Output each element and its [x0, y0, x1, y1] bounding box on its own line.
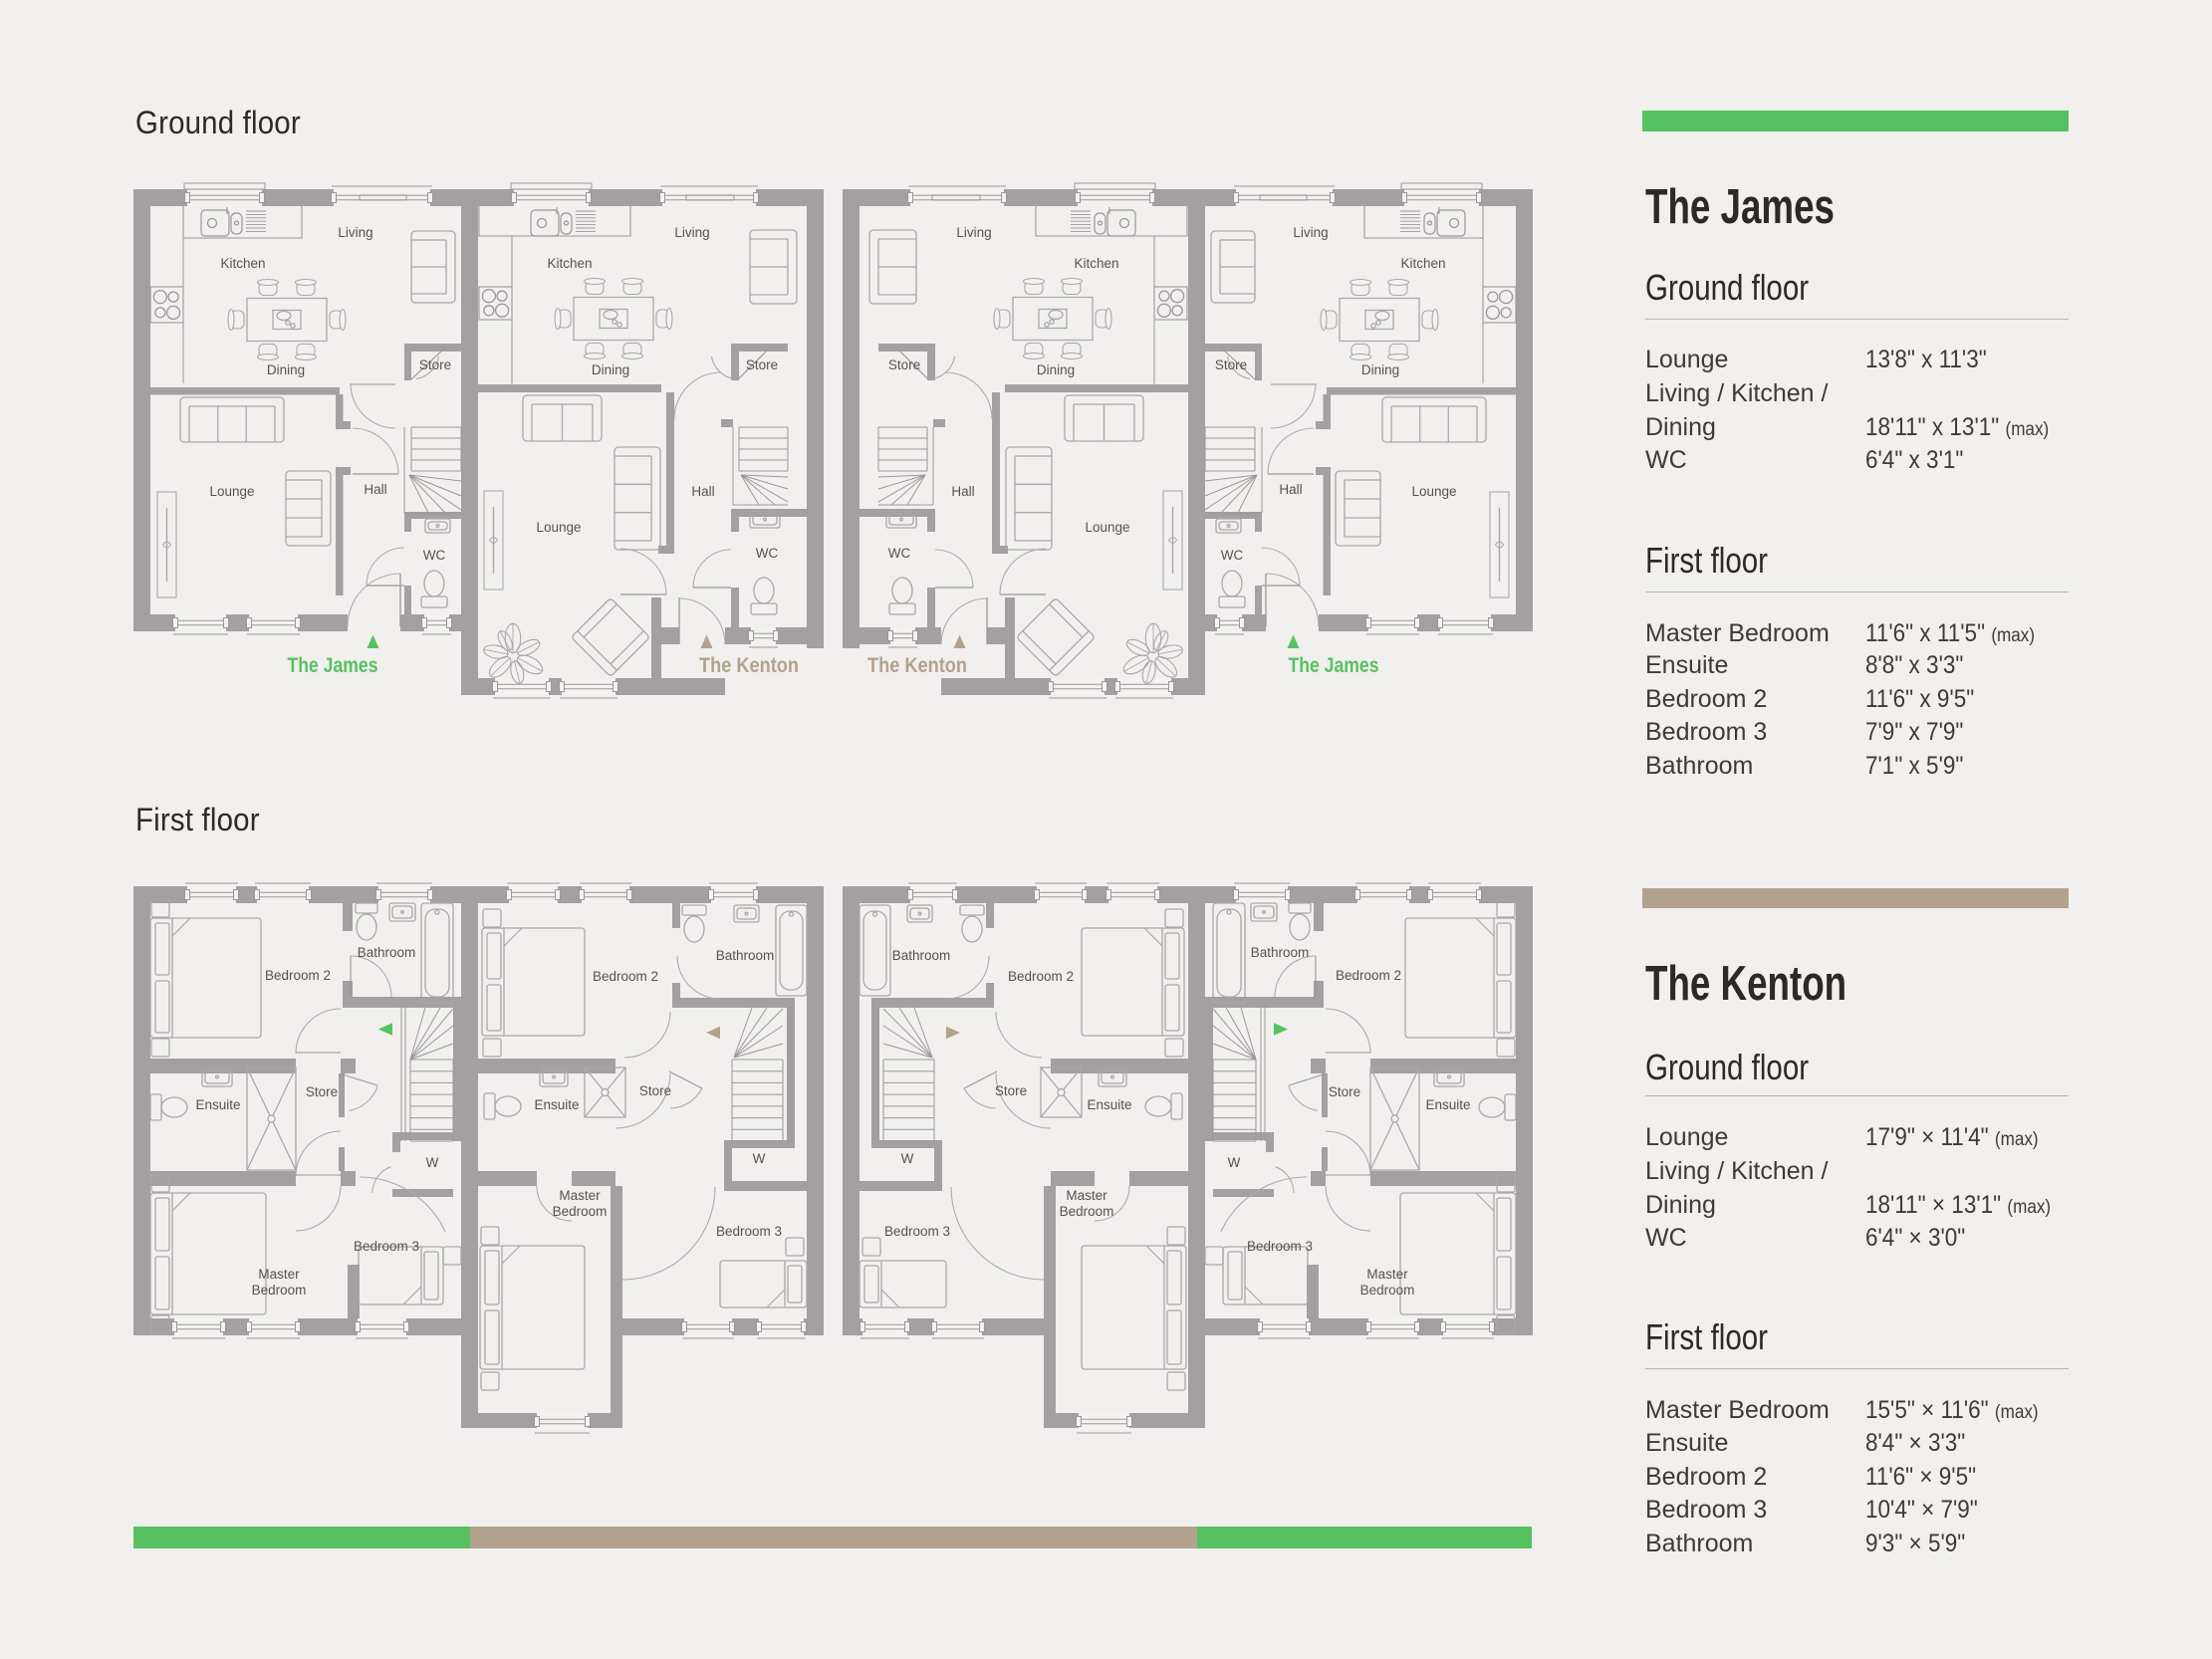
svg-text:Kitchen: Kitchen	[1400, 256, 1445, 271]
svg-text:Store: Store	[888, 357, 920, 372]
svg-text:WC: WC	[423, 548, 446, 563]
svg-text:Living: Living	[956, 225, 991, 240]
svg-text:Bedroom 3: Bedroom 3	[354, 1239, 419, 1254]
svg-text:Store: Store	[995, 1083, 1027, 1098]
svg-text:The Kenton: The Kenton	[867, 654, 967, 677]
svg-text:Bedroom 2: Bedroom 2	[593, 969, 658, 984]
svg-text:Kitchen: Kitchen	[547, 256, 592, 271]
svg-text:Living: Living	[338, 225, 372, 240]
svg-text:W: W	[753, 1151, 766, 1166]
svg-text:Bathroom: Bathroom	[892, 948, 951, 963]
svg-text:Bathroom: Bathroom	[716, 948, 775, 963]
svg-text:Bathroom: Bathroom	[1251, 945, 1310, 960]
svg-text:Bedroom: Bedroom	[1060, 1204, 1114, 1219]
svg-text:The James: The James	[1289, 654, 1379, 677]
svg-text:Bedroom 3: Bedroom 3	[884, 1224, 950, 1239]
svg-text:Bedroom: Bedroom	[553, 1204, 608, 1219]
svg-text:Bathroom: Bathroom	[358, 945, 416, 960]
svg-text:Store: Store	[306, 1084, 338, 1099]
svg-text:Store: Store	[1215, 357, 1247, 372]
svg-text:Ensuite: Ensuite	[1087, 1097, 1131, 1112]
svg-text:Bedroom 3: Bedroom 3	[716, 1224, 782, 1239]
svg-text:Store: Store	[746, 357, 778, 372]
svg-text:Lounge: Lounge	[209, 484, 254, 499]
svg-text:Living: Living	[674, 225, 709, 240]
svg-text:Bedroom: Bedroom	[252, 1283, 307, 1298]
svg-text:Dining: Dining	[1361, 362, 1399, 377]
svg-text:Bedroom 2: Bedroom 2	[1336, 968, 1401, 983]
svg-text:W: W	[1228, 1155, 1241, 1170]
svg-text:Dining: Dining	[592, 362, 629, 377]
svg-text:Master: Master	[1366, 1267, 1408, 1282]
svg-text:Kitchen: Kitchen	[220, 256, 265, 271]
svg-text:Hall: Hall	[951, 484, 974, 499]
svg-text:Bedroom: Bedroom	[1360, 1283, 1415, 1298]
svg-text:Bedroom 3: Bedroom 3	[1247, 1239, 1313, 1254]
svg-text:Hall: Hall	[691, 484, 714, 499]
svg-text:Ensuite: Ensuite	[1425, 1097, 1470, 1112]
svg-text:Lounge: Lounge	[1411, 484, 1456, 499]
svg-text:Master: Master	[258, 1267, 300, 1282]
svg-text:Kitchen: Kitchen	[1074, 256, 1118, 271]
svg-text:Store: Store	[639, 1083, 671, 1098]
svg-text:WC: WC	[756, 546, 779, 561]
svg-text:W: W	[901, 1151, 914, 1166]
svg-text:Ensuite: Ensuite	[195, 1097, 240, 1112]
svg-text:Dining: Dining	[267, 362, 305, 377]
svg-text:Master: Master	[1066, 1188, 1107, 1203]
svg-text:Store: Store	[419, 357, 451, 372]
svg-text:WC: WC	[888, 546, 911, 561]
svg-text:W: W	[426, 1155, 439, 1170]
svg-text:The James: The James	[288, 654, 378, 677]
svg-text:Living: Living	[1293, 225, 1328, 240]
svg-text:Lounge: Lounge	[1085, 520, 1129, 535]
svg-text:Master: Master	[559, 1188, 601, 1203]
svg-text:Bedroom 2: Bedroom 2	[265, 968, 331, 983]
svg-text:The Kenton: The Kenton	[699, 654, 799, 677]
svg-text:WC: WC	[1221, 548, 1244, 563]
svg-text:Hall: Hall	[364, 482, 386, 497]
svg-text:Ensuite: Ensuite	[534, 1097, 579, 1112]
svg-text:Hall: Hall	[1279, 482, 1302, 497]
svg-text:Store: Store	[1329, 1084, 1360, 1099]
svg-text:Bedroom 2: Bedroom 2	[1008, 969, 1074, 984]
svg-text:Dining: Dining	[1037, 362, 1075, 377]
svg-text:Lounge: Lounge	[536, 520, 581, 535]
